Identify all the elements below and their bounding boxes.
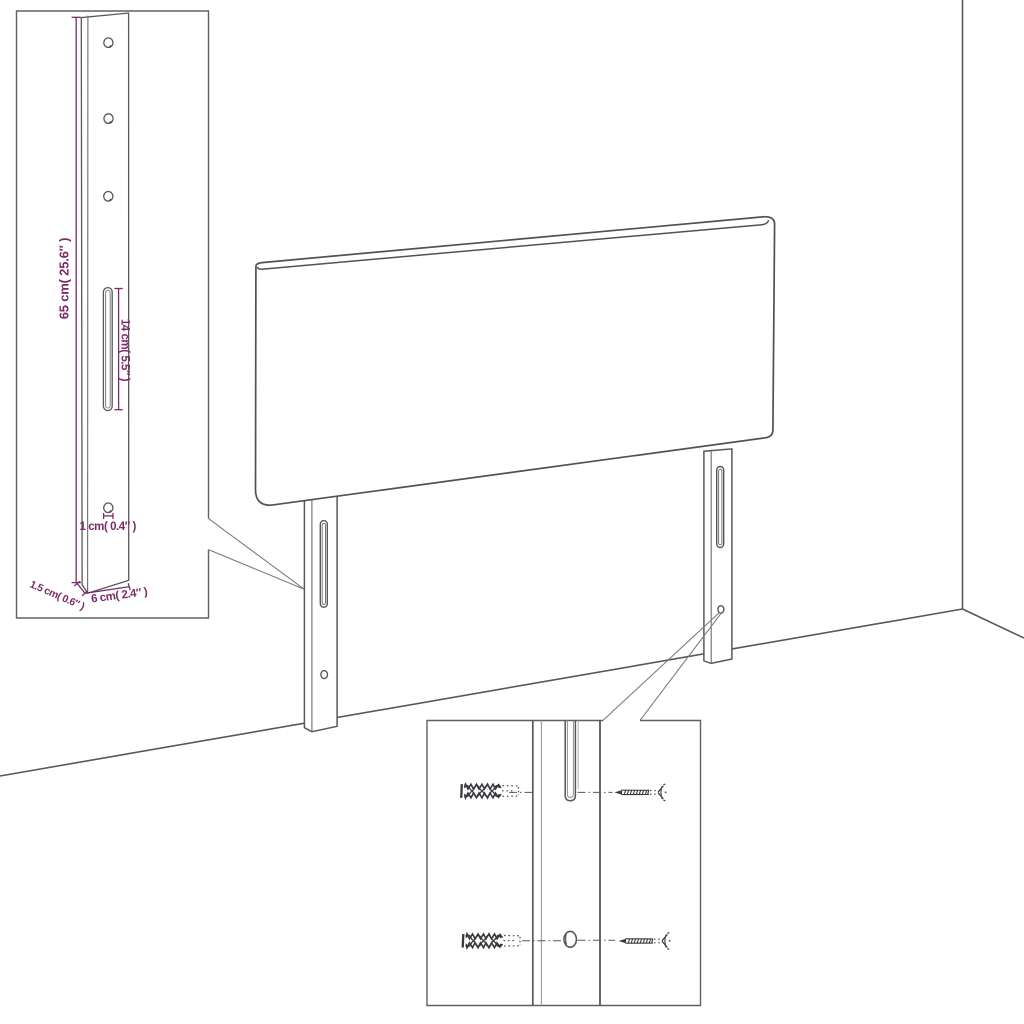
svg-text:14 cm( 5.5″ ): 14 cm( 5.5″ ) [118, 319, 130, 382]
svg-text:65 cm( 25.6″ ): 65 cm( 25.6″ ) [56, 238, 71, 319]
svg-text:1 cm( 0.4″ ): 1 cm( 0.4″ ) [80, 521, 137, 533]
